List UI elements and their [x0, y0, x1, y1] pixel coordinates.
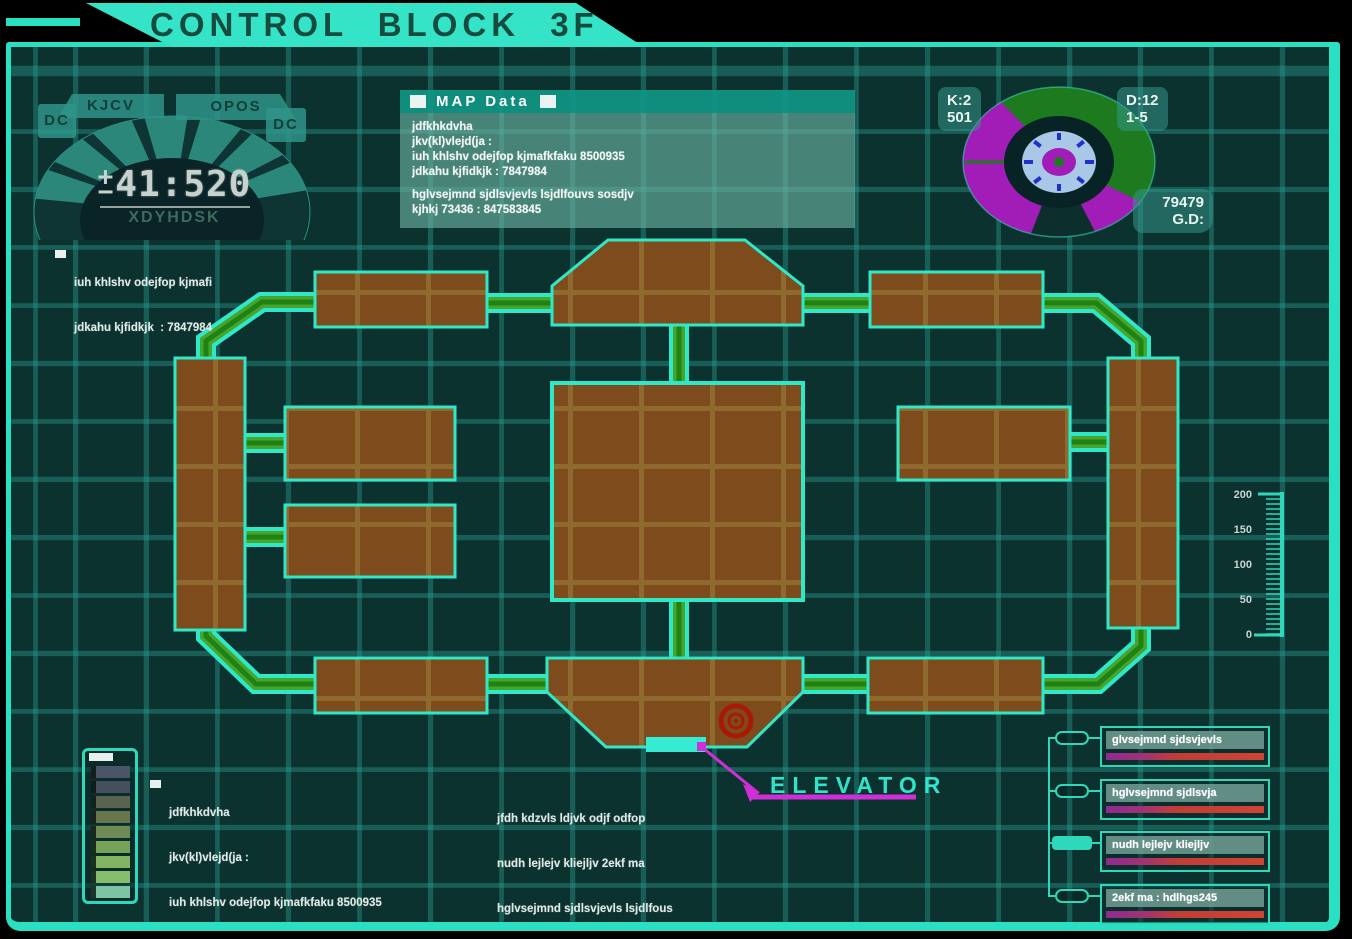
map-data-title: MAP Data: [436, 93, 530, 110]
legend-stub: [1089, 737, 1100, 739]
legend-toggle-pill[interactable]: [1055, 731, 1089, 745]
scale-bar: [91, 781, 130, 793]
map-data-body: jdfkhkdvha jkv(kl)vlejd(ja : iuh khlshv …: [400, 113, 855, 228]
room-top-left: [315, 272, 487, 327]
room-left-tall: [175, 358, 245, 630]
legend-item[interactable]: hglvsejmnd sjdlsvja: [1100, 779, 1270, 820]
legend-gradient-bar: [1106, 806, 1264, 813]
scale-bar: [91, 796, 130, 808]
map-data-panel: MAP Data jdfkhkdvha jkv(kl)vlejd(ja : iu…: [400, 90, 855, 228]
screen: CONTROL BLOCK 3F KJCV OPOS DC DC +− 41:5…: [0, 0, 1352, 939]
svg-text:100: 100: [1234, 559, 1252, 571]
plus-minus-sign: +−: [98, 170, 114, 199]
compass-tag-k: K:2 501: [938, 87, 981, 131]
map-data-bullet-icon: [540, 95, 556, 108]
legend-gradient-bar: [1106, 753, 1264, 760]
svg-text:150: 150: [1234, 524, 1252, 536]
bullet-square-icon: [55, 250, 66, 258]
gauge-note: iuh khlshv odejfop kjmafi jdkahu kjfidkj…: [74, 246, 212, 366]
gauge-value: 41:520: [115, 164, 251, 205]
room-mid-right: [898, 407, 1070, 480]
scale-bar: [91, 811, 130, 823]
scale-bar: [91, 766, 130, 778]
room-bottom-center: [547, 658, 803, 747]
compass-tag-gd: 79479 G.D:: [1133, 189, 1213, 233]
legend-item[interactable]: nudh lejlejv kliejljv: [1100, 831, 1270, 872]
depth-scale: 200 150 100 50 0: [1222, 484, 1300, 649]
bullet-square-icon: [150, 780, 161, 788]
svg-text:50: 50: [1240, 594, 1252, 606]
scale-bar: [91, 871, 130, 883]
scale-bar: [91, 856, 130, 868]
legend-stub: [1089, 842, 1100, 844]
top-left-deco-line: [6, 18, 80, 26]
legend-tab-icon: [89, 753, 113, 761]
room-right-tall: [1108, 358, 1178, 628]
gauge-dc-right: DC: [266, 108, 306, 142]
svg-text:200: 200: [1234, 489, 1252, 501]
scale-bar: [91, 886, 130, 898]
legend-toggle-pill[interactable]: [1052, 836, 1092, 850]
room-mid-left-1: [285, 407, 455, 480]
room-central: [552, 383, 803, 600]
scale-bar: [91, 826, 130, 838]
svg-text:0: 0: [1246, 629, 1252, 641]
legend-item[interactable]: 2ekf ma : hdlhgs245: [1100, 884, 1270, 925]
legend-gradient-bar: [1106, 858, 1264, 865]
legend-item[interactable]: glvsejmnd sjdsvjevls: [1100, 726, 1270, 767]
color-scale-legend: [82, 748, 138, 904]
notes-center: jfdh kdzvls ldjvk odjf odfop nudh lejlej…: [497, 782, 673, 939]
legend-stub: [1089, 895, 1100, 897]
room-bottom-right: [868, 658, 1043, 713]
readout-underline: [100, 206, 250, 208]
rooms: [175, 240, 1178, 747]
room-top-center: [552, 240, 803, 325]
elevator-label: ELEVATOR: [770, 772, 947, 799]
map-data-titlebar: MAP Data: [400, 90, 855, 113]
notes-left: jdfkhkdvha jkv(kl)vlejd(ja : iuh khlshv …: [169, 776, 391, 939]
legend-toggle-pill[interactable]: [1055, 889, 1089, 903]
scale-bar: [91, 841, 130, 853]
gauge-dc-left: DC: [38, 104, 76, 138]
legend-toggle-pill[interactable]: [1055, 784, 1089, 798]
legend-stub: [1089, 790, 1100, 792]
room-bottom-left: [315, 658, 487, 713]
page-title: CONTROL BLOCK 3F: [150, 6, 599, 44]
gauge-readout: +− 41:520 XDYHDSK: [82, 164, 267, 227]
legend-gradient-bar: [1106, 911, 1264, 918]
room-top-right: [870, 272, 1043, 327]
map-data-bullet-icon: [410, 95, 426, 108]
legend-connector-line: [1048, 738, 1050, 896]
gauge-label: XDYHDSK: [82, 209, 267, 227]
compass-tag-d: D:12 1-5: [1117, 87, 1168, 131]
room-mid-left-2: [285, 505, 455, 577]
